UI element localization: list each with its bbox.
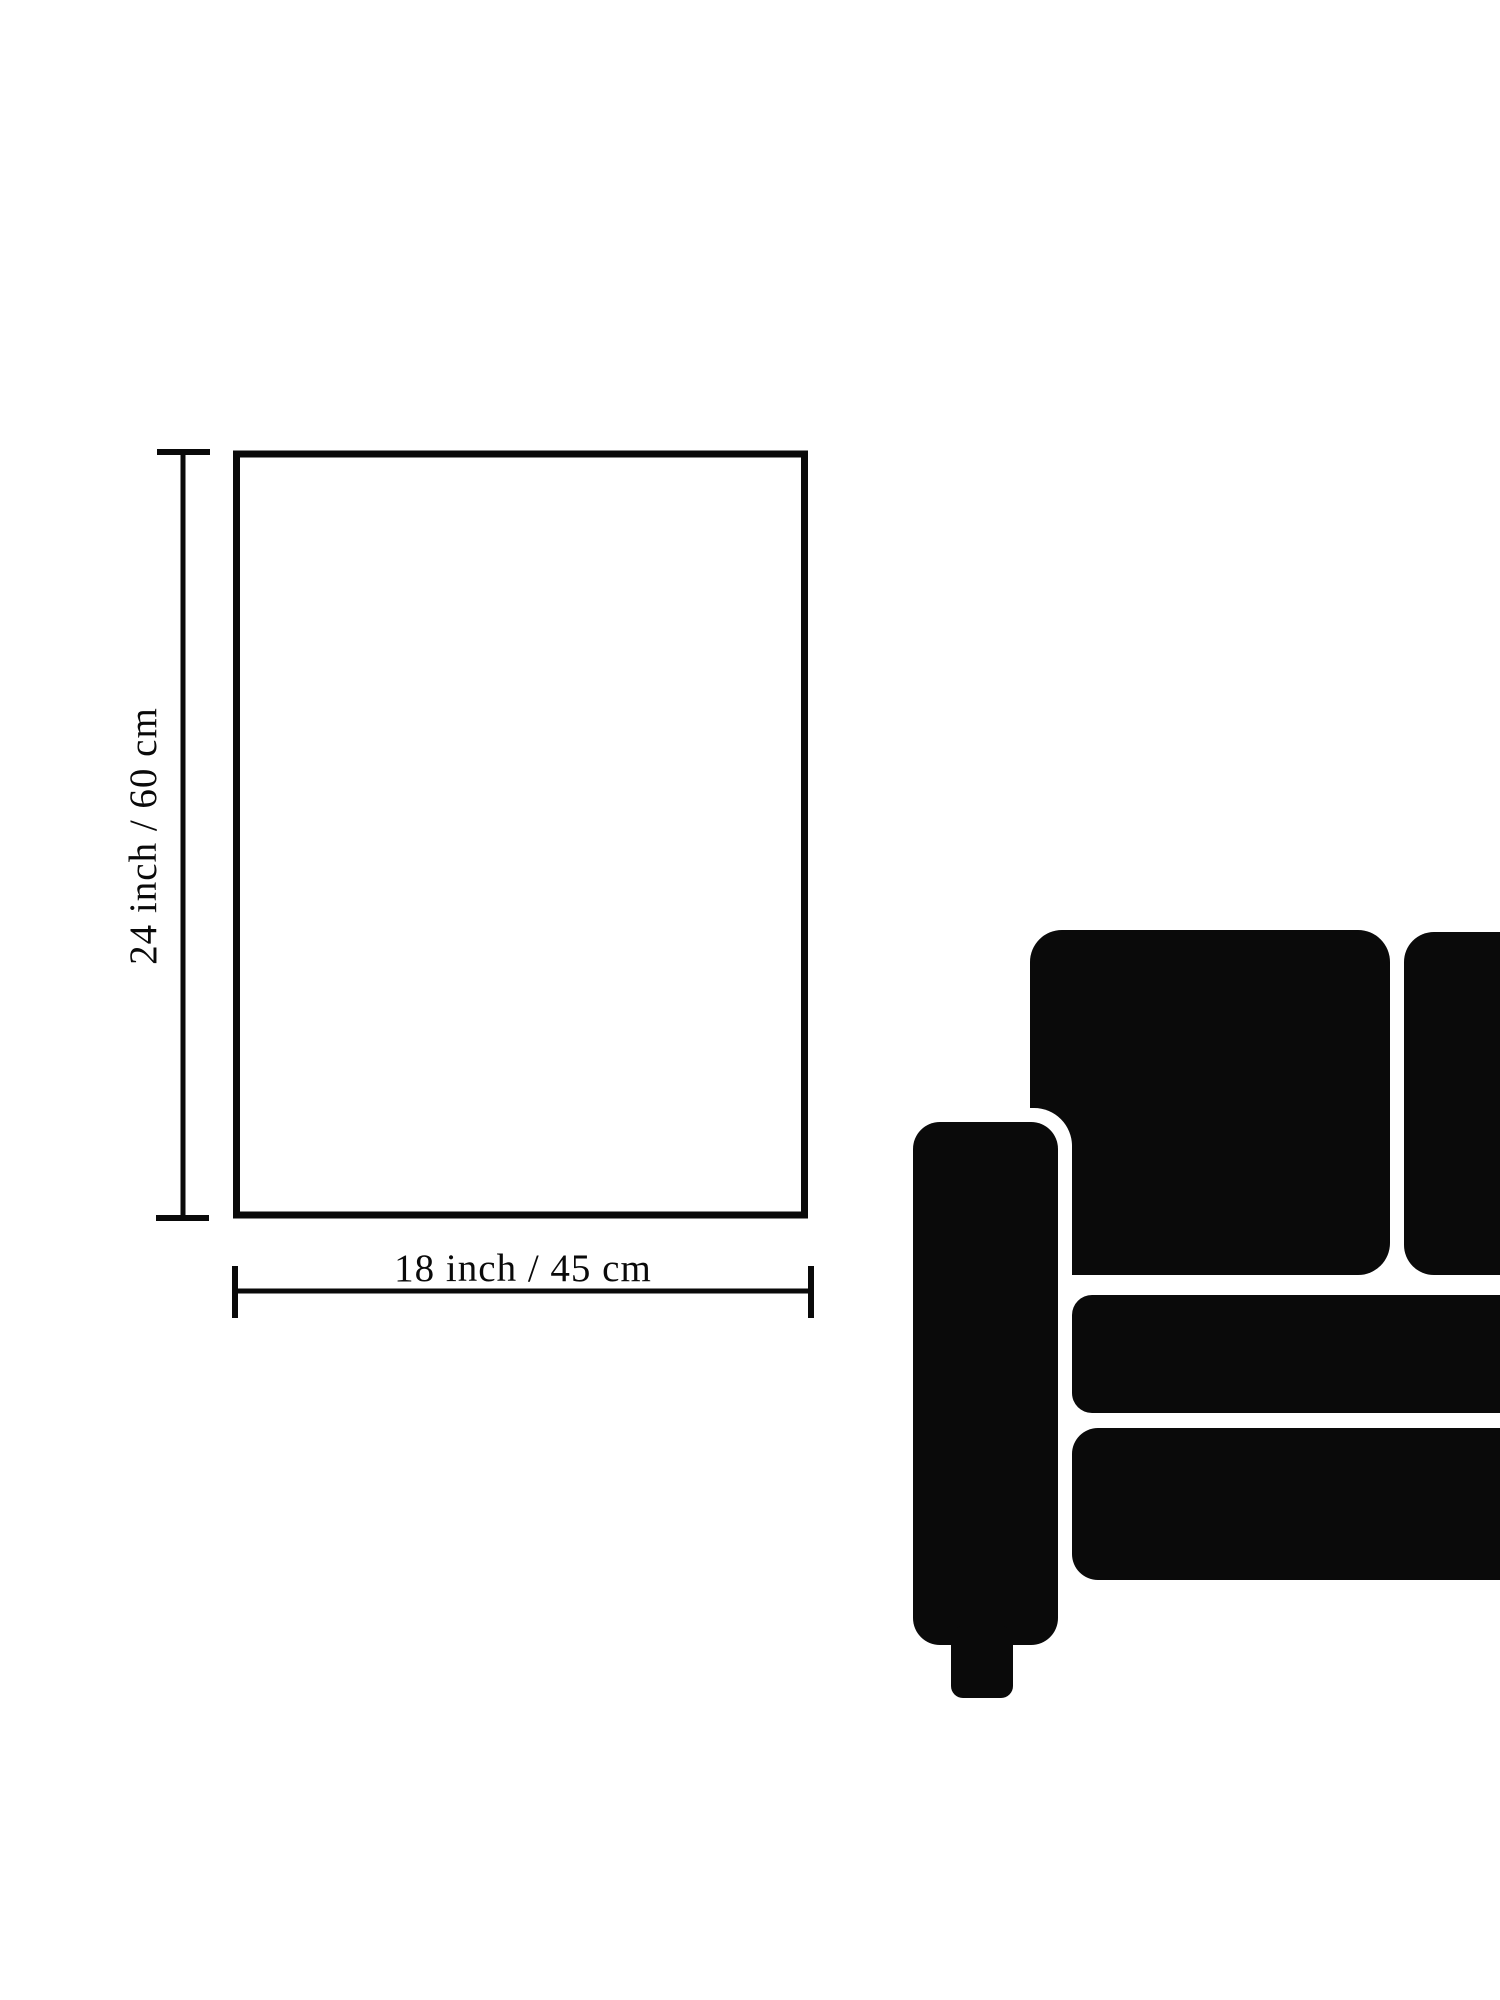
- product-dimension-diagram: 24 inch / 60 cm 18 inch / 45 cm: [0, 0, 1500, 2000]
- width-dimension-label: 18 inch / 45 cm: [394, 1247, 652, 1290]
- height-dimension: 24 inch / 60 cm: [122, 452, 210, 1218]
- width-dimension: 18 inch / 45 cm: [235, 1247, 811, 1318]
- height-dimension-label: 24 inch / 60 cm: [122, 707, 165, 965]
- sofa-backrest-left-cushion: [1030, 930, 1390, 1275]
- poster-outline: [237, 454, 805, 1215]
- sofa-foot: [951, 1626, 1013, 1698]
- sofa-backrest-right-cushion: [1404, 932, 1500, 1275]
- sofa-armrest: [913, 1122, 1058, 1645]
- sofa-seat-cushion-top: [1072, 1295, 1500, 1413]
- sofa-seat-cushion-bottom: [1072, 1428, 1500, 1580]
- diagram-canvas: 24 inch / 60 cm 18 inch / 45 cm: [0, 0, 1500, 2000]
- sofa-silhouette-icon: [899, 930, 1500, 1698]
